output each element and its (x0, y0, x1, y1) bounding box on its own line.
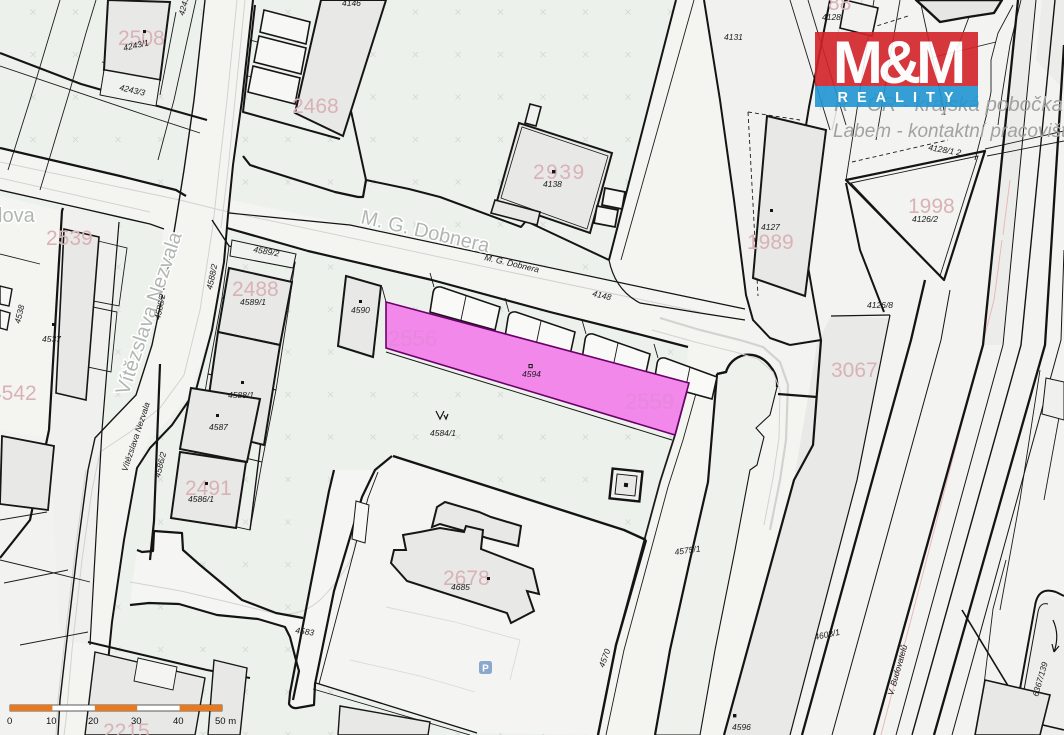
svg-text:4589/1: 4589/1 (240, 297, 266, 307)
svg-text:1989: 1989 (747, 231, 794, 254)
svg-text:0: 0 (7, 716, 12, 727)
svg-text:88: 88 (828, 0, 851, 15)
svg-text:lova: lova (0, 205, 36, 227)
svg-text:REALITY: REALITY (837, 90, 962, 106)
svg-text:3067: 3067 (831, 359, 878, 382)
svg-text:4542: 4542 (0, 382, 37, 405)
svg-text:4537: 4537 (42, 334, 61, 344)
svg-text:10: 10 (46, 716, 57, 727)
svg-text:4584/1: 4584/1 (430, 428, 456, 438)
svg-text:4588/1: 4588/1 (228, 390, 254, 400)
svg-text:Labem - kontaktní pracoviště: Labem - kontaktní pracoviště (833, 121, 1064, 142)
svg-text:2556: 2556 (388, 326, 437, 351)
svg-text:P: P (482, 664, 489, 675)
svg-text:40: 40 (173, 716, 184, 727)
svg-text:2468: 2468 (292, 95, 339, 118)
svg-text:4685: 4685 (451, 582, 470, 592)
svg-text:2539: 2539 (46, 227, 93, 250)
svg-text:4586/1: 4586/1 (188, 494, 214, 504)
svg-text:4126/2: 4126/2 (912, 214, 938, 224)
svg-text:4587: 4587 (209, 422, 228, 432)
svg-text:4138: 4138 (543, 179, 562, 189)
svg-text:20: 20 (88, 716, 99, 727)
svg-text:4126/8: 4126/8 (867, 300, 893, 310)
svg-text:4596: 4596 (732, 722, 751, 732)
svg-text:M&M: M&M (833, 29, 962, 96)
svg-text:4146: 4146 (342, 0, 361, 8)
svg-text:4590: 4590 (351, 305, 370, 315)
svg-text:4594: 4594 (522, 369, 541, 379)
svg-text:4127: 4127 (761, 222, 780, 232)
svg-text:2559: 2559 (625, 389, 674, 414)
svg-text:50 m: 50 m (215, 716, 236, 727)
svg-text:2215: 2215 (103, 720, 150, 735)
svg-text:30: 30 (131, 716, 142, 727)
svg-text:4131: 4131 (724, 32, 743, 42)
